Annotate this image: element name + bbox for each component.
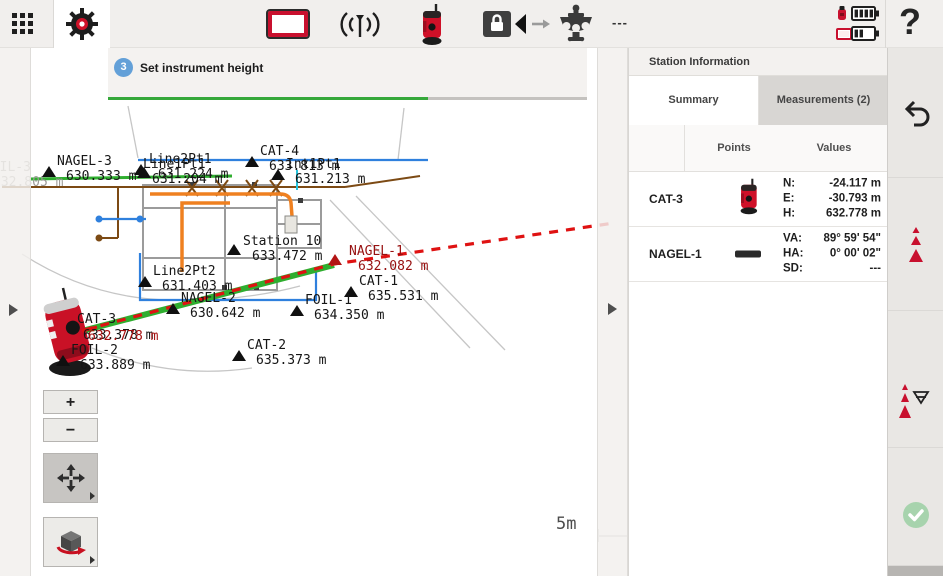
value-label: VA: bbox=[783, 232, 802, 247]
map-scale-label: 5m bbox=[556, 514, 576, 534]
point-elevation: 630.333 m bbox=[66, 169, 136, 184]
sidebar-section bbox=[888, 178, 943, 311]
point-name: Int1Pt1 bbox=[286, 157, 365, 172]
target-points-icon[interactable] bbox=[904, 226, 928, 268]
map-point-Station-10[interactable]: Station 10 633.472 m bbox=[243, 234, 322, 264]
instrument-battery-icon bbox=[851, 6, 880, 21]
point-elevation: 633.472 m bbox=[252, 249, 322, 264]
point-elevation: 631.204 m bbox=[152, 172, 222, 187]
point-name: CAT-2 bbox=[247, 338, 326, 353]
lock-track-icon[interactable] bbox=[482, 9, 560, 39]
map-point-Line1Pt1[interactable]: Line1Pt1 631.204 m bbox=[143, 157, 222, 187]
point-elevation: 632.082 m bbox=[358, 259, 428, 274]
main-area: 3 Set instrument height FOIL-3 632.805 m… bbox=[0, 48, 943, 576]
rotate-3d-icon bbox=[54, 525, 88, 559]
zoom-out-button[interactable]: − bbox=[43, 418, 98, 442]
column-header-points: Points bbox=[684, 125, 784, 172]
map-point-CAT-3[interactable]: CAT-3 633.378 m 632.778 m bbox=[77, 312, 116, 327]
row-point-name: CAT-3 bbox=[649, 192, 683, 206]
point-name: NAGEL-3 bbox=[57, 154, 136, 169]
map-point-Int1Pt1[interactable]: Int1Pt1 631.213 m bbox=[286, 157, 365, 187]
utility-box bbox=[285, 216, 297, 233]
sidebar-section bbox=[888, 48, 943, 178]
value-label: E: bbox=[783, 192, 795, 207]
settings-gear-icon bbox=[65, 7, 99, 41]
map-point-FOIL-1[interactable]: FOIL-1 634.350 m bbox=[305, 293, 384, 323]
point-elevation: 634.350 m bbox=[314, 308, 384, 323]
help-icon[interactable]: ? bbox=[899, 1, 921, 43]
point-name: Station 10 bbox=[243, 234, 322, 249]
wizard-step-header: 3 Set instrument height bbox=[108, 48, 587, 100]
point-name: NAGEL-2 bbox=[181, 291, 260, 306]
utility-node bbox=[137, 216, 144, 223]
point-marker bbox=[42, 166, 56, 177]
table-row-NAGEL-1[interactable]: NAGEL-1 VA:89° 59' 54" HA:0° 00' 02" SD:… bbox=[629, 227, 888, 282]
step-number-badge: 3 bbox=[114, 58, 133, 77]
point-elevation: 630.642 m bbox=[190, 306, 260, 321]
toolbar-divider bbox=[885, 0, 886, 48]
measurements-table-header: Points Values bbox=[629, 125, 888, 172]
point-name: NAGEL-1 bbox=[349, 244, 428, 259]
point-elevation: 635.373 m bbox=[256, 353, 326, 368]
point-name: CAT-1 bbox=[359, 274, 438, 289]
point-marker bbox=[56, 355, 70, 366]
total-station-icon bbox=[735, 176, 761, 223]
value-label: SD: bbox=[783, 262, 803, 277]
value-number: 632.778 m bbox=[826, 207, 881, 222]
point-marker bbox=[137, 167, 151, 178]
pan-icon bbox=[55, 462, 87, 494]
point-marker bbox=[328, 254, 342, 265]
point-marker bbox=[245, 156, 259, 167]
right-panel-strip bbox=[597, 48, 628, 576]
row-point-name: NAGEL-1 bbox=[649, 247, 702, 261]
total-station-app: { "toolbar": { "status_dashes": "---", "… bbox=[0, 0, 943, 576]
utility-node bbox=[96, 235, 103, 242]
panel-title: Station Information bbox=[629, 48, 888, 76]
point-elevation: 633.889 m bbox=[80, 358, 150, 373]
submenu-indicator bbox=[90, 492, 95, 500]
value-number: 0° 00' 02" bbox=[830, 247, 881, 262]
point-name: FOIL-2 bbox=[71, 343, 150, 358]
radio-signal-icon[interactable] bbox=[338, 6, 382, 42]
value-number: -24.117 m bbox=[829, 177, 881, 192]
expand-right-panel-arrow[interactable] bbox=[608, 303, 617, 315]
total-station-icon[interactable] bbox=[416, 3, 446, 46]
left-panel-strip bbox=[0, 48, 31, 576]
controller-device-icon bbox=[836, 28, 852, 40]
map-point-NAGEL-2[interactable]: NAGEL-2 630.642 m bbox=[181, 291, 260, 321]
point-marker bbox=[271, 169, 285, 180]
sidebar-section bbox=[888, 311, 943, 448]
map-point-NAGEL-1[interactable]: NAGEL-1 632.082 m bbox=[349, 244, 428, 274]
point-name: Line1Pt1 bbox=[143, 157, 222, 172]
point-name: Line2Pt2 bbox=[153, 264, 232, 279]
point-name: FOIL-1 bbox=[305, 293, 384, 308]
sidebar-footer bbox=[888, 566, 943, 576]
map-point-CAT-2[interactable]: CAT-2 635.373 m bbox=[247, 338, 326, 368]
value-number: -30.793 m bbox=[829, 192, 881, 207]
confirm-check-icon[interactable] bbox=[901, 500, 931, 530]
point-marker bbox=[232, 350, 246, 361]
value-label: HA: bbox=[783, 247, 803, 262]
table-row-CAT-3[interactable]: CAT-3 N:-24.117 m E:-30.793 m H:632.778 … bbox=[629, 172, 888, 227]
undo-icon[interactable] bbox=[901, 98, 931, 128]
point-name: CAT-3 bbox=[77, 312, 116, 327]
value-label: H: bbox=[783, 207, 795, 222]
value-label: N: bbox=[783, 177, 795, 192]
progress-bar-rest bbox=[428, 97, 587, 100]
wizard-step-title: Set instrument height bbox=[140, 61, 263, 75]
point-marker bbox=[227, 244, 241, 255]
instrument-battery-device-icon bbox=[836, 5, 848, 22]
action-sidebar bbox=[887, 48, 943, 576]
row-values: N:-24.117 m E:-30.793 m H:632.778 m bbox=[783, 177, 881, 222]
progress-bar-filled bbox=[108, 97, 428, 100]
point-marker bbox=[290, 305, 304, 316]
point-marker bbox=[138, 276, 152, 287]
apps-grid-icon[interactable] bbox=[11, 12, 35, 36]
station-information-panel: Station Information Summary Measurements… bbox=[628, 48, 887, 576]
point-marker bbox=[166, 303, 180, 314]
column-header-values: Values bbox=[784, 125, 884, 172]
point-elevation: 631.213 m bbox=[295, 172, 365, 187]
map-point-NAGEL-3[interactable]: NAGEL-3 630.333 m bbox=[57, 154, 136, 184]
tab-measurements[interactable]: Measurements (2) bbox=[759, 76, 888, 125]
pan-tool-button[interactable] bbox=[43, 453, 98, 503]
tab-summary[interactable]: Summary bbox=[629, 76, 759, 125]
value-number: 89° 59' 54" bbox=[823, 232, 881, 247]
staff-icon bbox=[735, 251, 761, 258]
top-toolbar: --- ? bbox=[0, 0, 943, 48]
row-values: VA:89° 59' 54" HA:0° 00' 02" SD:--- bbox=[783, 232, 881, 277]
tribrach-icon[interactable] bbox=[556, 4, 596, 44]
point-elevation: 632.778 m bbox=[88, 329, 158, 344]
value-number: --- bbox=[870, 262, 882, 277]
expand-left-panel-arrow[interactable] bbox=[9, 304, 18, 316]
map-view[interactable]: 3 Set instrument height FOIL-3 632.805 m… bbox=[0, 48, 628, 576]
sidebar-section bbox=[888, 448, 943, 566]
set-orientation-icon[interactable] bbox=[897, 383, 935, 427]
display-icon[interactable] bbox=[268, 11, 308, 37]
map-point-Line2Pt2[interactable]: Line2Pt2 631.403 m bbox=[153, 264, 232, 294]
connection-status-text: --- bbox=[612, 15, 628, 30]
settings-gear-button[interactable] bbox=[54, 0, 110, 48]
controller-battery-icon bbox=[851, 26, 880, 41]
utility-node bbox=[96, 216, 103, 223]
submenu-indicator bbox=[90, 556, 95, 564]
zoom-in-button[interactable]: + bbox=[43, 390, 98, 414]
rotate-3d-button[interactable] bbox=[43, 517, 98, 567]
map-point-FOIL-2[interactable]: FOIL-2 633.889 m bbox=[71, 343, 150, 373]
